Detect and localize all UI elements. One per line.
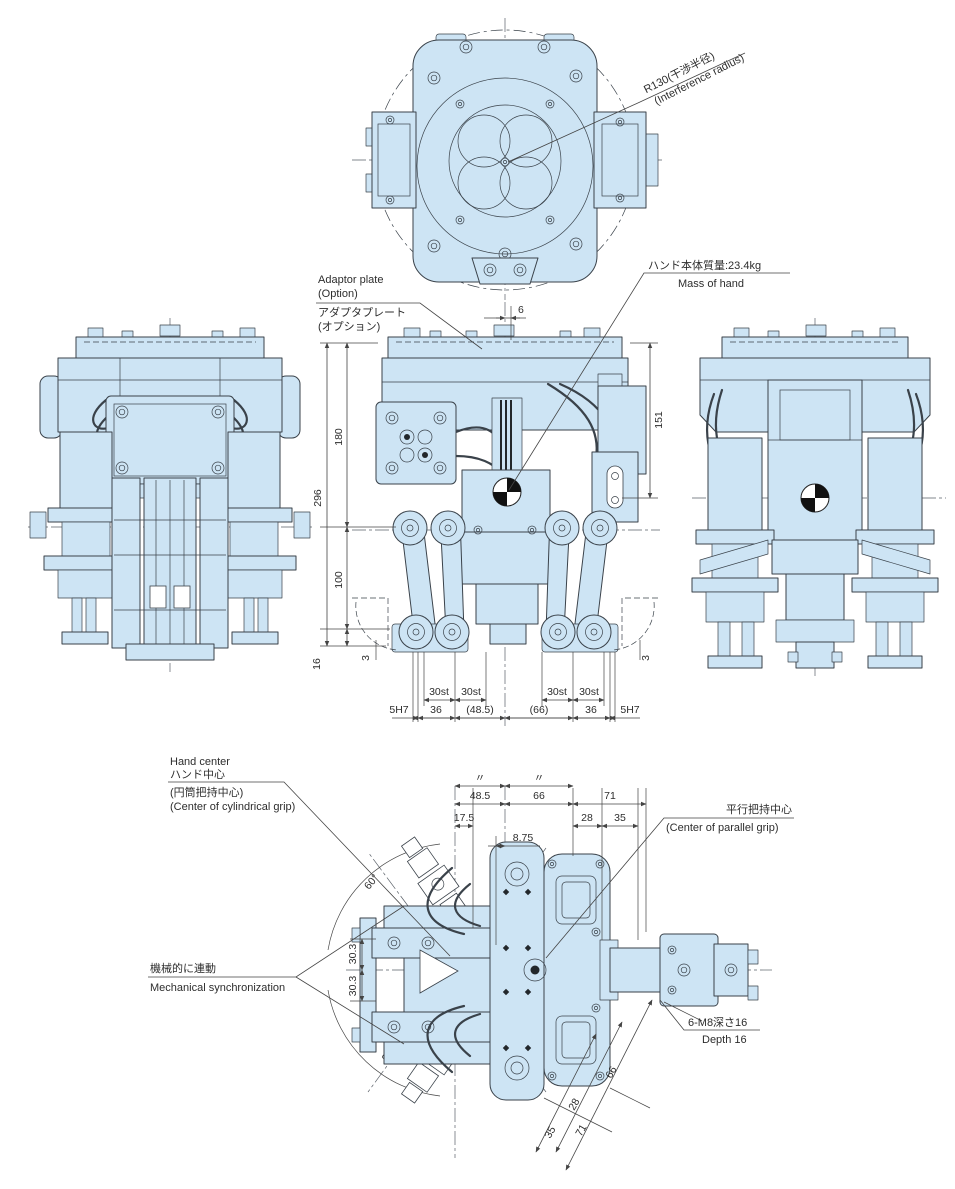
dim-right-height: 151 bbox=[653, 411, 665, 429]
bottom-view: 60° 60° bbox=[328, 786, 772, 1158]
mass-label-en: Mass of hand bbox=[678, 278, 744, 290]
left-side-view bbox=[28, 318, 312, 672]
dim-left-30-3-a: 30.3 bbox=[347, 944, 359, 965]
dim-top-offset: 6 bbox=[518, 304, 524, 316]
mech-sync-label-jp: 機械的に連動 bbox=[150, 961, 216, 975]
adaptor-plate-label-en1: Adaptor plate bbox=[318, 274, 383, 286]
adaptor-plate-label-jp2: (オプション) bbox=[318, 320, 380, 333]
dim-row1-71: 71 bbox=[604, 790, 616, 802]
center-of-mass-symbol-side bbox=[801, 484, 829, 512]
dim-angle-upper: 60° bbox=[362, 872, 381, 892]
dim-upper-height: 180 bbox=[333, 428, 345, 446]
dim-row2-17-5: 17.5 bbox=[454, 812, 475, 824]
dim-offset-8-75: 8.75 bbox=[513, 832, 534, 844]
front-view bbox=[352, 302, 660, 726]
dim-row2-28: 28 bbox=[581, 812, 593, 824]
dim-left-small: 3 bbox=[360, 655, 372, 661]
mech-sync-label-en: Mechanical synchronization bbox=[150, 982, 285, 994]
dim-lower-height: 100 bbox=[333, 571, 345, 589]
robot-hand-drawing: R130(干渉半径) (Interference radius) bbox=[0, 0, 955, 1189]
dim-pin-left: 5H7 bbox=[389, 704, 408, 716]
hand-center-label-jp1: ハンド中心 bbox=[170, 768, 225, 781]
hand-center-label-en1: Hand center bbox=[170, 756, 230, 768]
dim-row1-48-5: 48.5 bbox=[470, 790, 491, 802]
dim-stroke-2: 30st bbox=[461, 686, 481, 698]
dim-stroke-3: 30st bbox=[547, 686, 567, 698]
technical-drawing-page: R130(干渉半径) (Interference radius) bbox=[0, 0, 955, 1189]
parallel-grip-label-en: (Center of parallel grip) bbox=[666, 822, 779, 834]
tap-label-jp: 6-M8深さ16 bbox=[688, 1016, 747, 1029]
dim-left-30-3-b: 30.3 bbox=[347, 976, 359, 997]
dim-stroke-1: 30st bbox=[429, 686, 449, 698]
dim-pin-right: 5H7 bbox=[620, 704, 639, 716]
top-plan-view: R130(干渉半径) (Interference radius) bbox=[352, 18, 746, 300]
hand-center-label-jp2: (円筒把持中心) bbox=[170, 785, 243, 799]
dim-66: (66) bbox=[530, 704, 549, 716]
dim-36-right: 36 bbox=[585, 704, 597, 716]
dim-stroke-4: 30st bbox=[579, 686, 599, 698]
dim-row2-35: 35 bbox=[614, 812, 626, 824]
tap-label-en: Depth 16 bbox=[702, 1034, 747, 1046]
dim-diag-35: 35 bbox=[542, 1124, 558, 1140]
parallel-grip-label-jp: 平行把持中心 bbox=[726, 802, 792, 816]
dim-right-small: 3 bbox=[640, 655, 652, 661]
dim-ditto-2: 〃 bbox=[534, 772, 545, 784]
dim-row1-66: 66 bbox=[533, 790, 545, 802]
dim-ditto-1: 〃 bbox=[475, 772, 486, 784]
interference-radius-label: R130(干渉半径) (Interference radius) bbox=[641, 37, 746, 110]
hand-center-label-en2: (Center of cylindrical grip) bbox=[170, 801, 295, 813]
right-side-view bbox=[692, 318, 946, 676]
dim-36-left: 36 bbox=[430, 704, 442, 716]
adaptor-plate-label-en2: (Option) bbox=[318, 288, 358, 300]
dim-base-height: 16 bbox=[311, 658, 323, 670]
dim-48-5: (48.5) bbox=[466, 704, 493, 716]
adaptor-plate-label-jp1: アダプタプレート bbox=[318, 305, 406, 319]
dim-diag-71: 71 bbox=[573, 1122, 589, 1138]
center-of-mass-symbol bbox=[493, 478, 521, 506]
mass-label-jp: ハンド本体質量:23.4kg bbox=[648, 258, 761, 272]
dim-total-height: 296 bbox=[312, 489, 324, 507]
